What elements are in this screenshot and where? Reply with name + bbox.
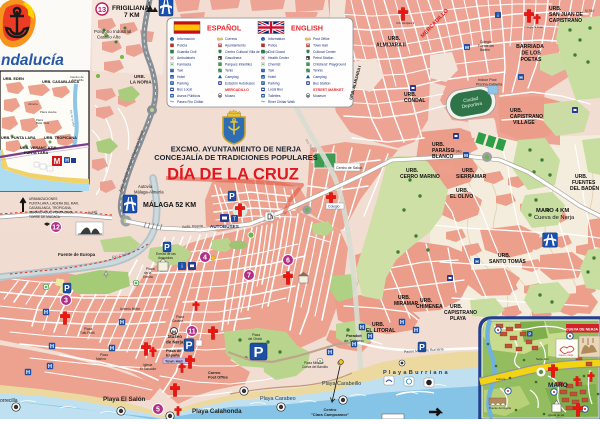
svg-text:SANTO TOMÁS: SANTO TOMÁS: [489, 258, 526, 265]
svg-text:ENGLISH: ENGLISH: [291, 24, 323, 33]
svg-text:Piscina Cubierta: Piscina Cubierta: [476, 83, 502, 87]
svg-text:Ermita: Ermita: [143, 275, 153, 279]
svg-text:Hotel: Hotel: [177, 75, 185, 79]
svg-text:Cultural Center: Cultural Center: [313, 50, 337, 54]
svg-text:Plaza Huelva: Plaza Huelva: [40, 110, 57, 114]
svg-text:Plaza de: Plaza de: [166, 349, 181, 353]
svg-text:Bella Vista: Bella Vista: [36, 121, 50, 125]
svg-text:Aseos Públicos: Aseos Públicos: [177, 94, 200, 98]
svg-text:6: 6: [286, 258, 290, 265]
svg-text:Parques Infantiles: Parques Infantiles: [225, 62, 252, 66]
svg-text:PUNTA LARA: PUNTA LARA: [24, 151, 49, 155]
svg-text:CUEVA DE NERJA: CUEVA DE NERJA: [566, 327, 599, 331]
svg-text:Bus Local: Bus Local: [177, 88, 192, 92]
svg-text:URB.: URB.: [388, 36, 401, 42]
svg-text:del Olvido: del Olvido: [248, 337, 262, 341]
svg-text:Marina: Marina: [96, 357, 106, 361]
svg-text:CAPISTRANO: CAPISTRANO: [549, 18, 582, 24]
svg-text:URB. EDEN: URB. EDEN: [3, 77, 24, 81]
svg-text:Parking: Parking: [177, 81, 189, 85]
svg-text:Local Bus: Local Bus: [268, 88, 283, 92]
svg-text:M: M: [54, 157, 61, 166]
svg-text:Post Office: Post Office: [313, 37, 330, 41]
svg-text:URB. VERANO AZUL,: URB. VERANO AZUL,: [20, 146, 59, 150]
svg-text:PUNTA LARA, LADERA DEL MAR,: PUNTA LARA, LADERA DEL MAR,: [29, 202, 79, 206]
svg-text:Museo: Museo: [168, 334, 182, 339]
svg-text:"Clara Campoamor": "Clara Campoamor": [311, 412, 349, 417]
svg-text:Estación Autobuses: Estación Autobuses: [225, 81, 255, 85]
svg-text:PARAÍSO: PARAÍSO: [432, 146, 455, 154]
svg-text:Centro de Salud: Centro de Salud: [336, 166, 362, 170]
svg-text:N 340: N 340: [585, 9, 594, 13]
svg-text:Farmacia: Farmacia: [177, 62, 191, 66]
svg-text:URBANIZACIONES: URBANIZACIONES: [29, 197, 57, 201]
svg-text:H: H: [171, 75, 173, 79]
svg-text:Paseo Río Chillar: Paseo Río Chillar: [177, 100, 204, 104]
svg-text:H: H: [65, 158, 69, 164]
svg-text:STREET MARKET: STREET MARKET: [313, 88, 344, 92]
svg-text:Playa Carabeo: Playa Carabeo: [260, 396, 296, 402]
svg-text:P: P: [171, 81, 173, 85]
svg-text:MARO: MARO: [548, 382, 568, 389]
svg-text:Polígono Industrial: Polígono Industrial: [94, 29, 131, 34]
svg-text:Castillo Alto: Castillo Alto: [97, 35, 121, 40]
svg-text:Post Office: Post Office: [208, 376, 228, 380]
svg-text:URB. PUNTA LARA: URB. PUNTA LARA: [1, 136, 36, 140]
svg-text:MARO 4 KM: MARO 4 KM: [536, 208, 569, 214]
svg-text:5: 5: [156, 407, 160, 414]
svg-text:Playa El Salón: Playa El Salón: [103, 396, 146, 403]
svg-text:España: España: [166, 354, 180, 358]
svg-text:Correo: Correo: [208, 371, 221, 375]
svg-text:URB.: URB.: [134, 74, 145, 79]
svg-text:Urb. Almijara II: Urb. Almijara II: [396, 21, 415, 25]
svg-text:Tutti-Frutti: Tutti-Frutti: [80, 331, 95, 335]
svg-text:FRIGILIANA: FRIGILIANA: [112, 5, 149, 12]
svg-text:DE LOS: DE LOS: [521, 51, 541, 57]
svg-text:Información: Información: [177, 37, 195, 41]
svg-text:MIRAMAR: MIRAMAR: [394, 301, 419, 307]
svg-text:Camping: Camping: [225, 75, 239, 79]
svg-text:Policía: Policía: [177, 44, 187, 48]
svg-text:CHIMENEA: CHIMENEA: [416, 304, 443, 310]
svg-text:M: M: [172, 329, 176, 334]
svg-text:7: 7: [247, 273, 251, 280]
svg-text:TORRE DE MACACA: TORRE DE MACACA: [29, 215, 61, 219]
svg-text:Fuente de Europa: Fuente de Europa: [58, 252, 96, 257]
svg-text:Tenis: Tenis: [225, 69, 233, 73]
svg-text:Town Hall: Town Hall: [165, 360, 183, 364]
svg-text:Angustias: Angustias: [158, 256, 173, 260]
svg-text:BLANCO: BLANCO: [432, 154, 453, 160]
svg-text:SIERRAMAR: SIERRAMAR: [456, 174, 487, 180]
svg-text:Guardia Civil: Guardia Civil: [177, 50, 197, 54]
svg-text:Cueva - Nerja: Cueva - Nerja: [559, 354, 574, 357]
svg-text:Ambulatorio: Ambulatorio: [177, 56, 195, 60]
svg-text:CONCEJALÍA DE TRADICIONES POPU: CONCEJALÍA DE TRADICIONES POPULARES: [154, 153, 318, 162]
svg-text:Information: Information: [268, 37, 285, 41]
svg-text:i: i: [497, 13, 498, 18]
svg-text:ndalucía: ndalucía: [1, 52, 64, 69]
svg-text:DÍA DE LA CRUZ: DÍA DE LA CRUZ: [167, 165, 299, 184]
svg-text:EL OLIVO: EL OLIVO: [450, 194, 473, 200]
svg-text:Police: Police: [268, 44, 277, 48]
svg-text:Taxi: Taxi: [268, 69, 274, 73]
svg-text:T: T: [233, 217, 236, 223]
svg-text:4: 4: [203, 255, 207, 262]
svg-text:13: 13: [98, 5, 106, 14]
svg-text:VERANO AZUL, PUNTA LARA,: VERANO AZUL, PUNTA LARA,: [29, 211, 74, 215]
svg-text:Ermedillo: Ermedillo: [72, 78, 84, 82]
svg-text:VILLAGE: VILLAGE: [513, 120, 535, 126]
svg-text:BARRIADA: BARRIADA: [516, 44, 544, 50]
svg-text:MÁLAGA 52 KM: MÁLAGA 52 KM: [143, 200, 196, 209]
svg-text:Correos: Correos: [225, 37, 237, 41]
svg-text:Museum: Museum: [313, 94, 326, 98]
svg-text:11: 11: [188, 329, 196, 336]
svg-text:Cueva del Bandito: Cueva del Bandito: [302, 365, 328, 369]
svg-text:Ayuntamiento: Ayuntamiento: [225, 44, 246, 48]
svg-text:Town Hall: Town Hall: [313, 44, 328, 48]
svg-text:LA NORIA: LA NORIA: [130, 80, 152, 85]
svg-text:Iglesia de las: Iglesia de las: [548, 413, 565, 417]
svg-text:El Salvador: El Salvador: [140, 367, 157, 371]
svg-text:12: 12: [52, 225, 60, 232]
svg-text:M: M: [465, 45, 469, 50]
svg-text:P: P: [253, 344, 263, 361]
svg-text:Colegio S.Juan: Colegio S.Juan: [524, 25, 543, 29]
svg-text:Autovía: Autovía: [496, 377, 506, 381]
svg-text:ESPAÑOL: ESPAÑOL: [207, 24, 242, 33]
svg-text:Health Center: Health Center: [268, 56, 290, 60]
svg-text:Camping: Camping: [313, 75, 327, 79]
svg-text:P: P: [262, 81, 264, 85]
svg-text:M: M: [464, 153, 468, 158]
svg-text:Nerja 4km: Nerja 4km: [536, 357, 549, 361]
svg-text:Autovía: Autovía: [138, 184, 153, 189]
svg-text:Gasolinera: Gasolinera: [225, 56, 242, 60]
svg-text:H: H: [262, 75, 264, 79]
svg-text:i: i: [181, 264, 182, 270]
svg-text:ALMIJARA II: ALMIJARA II: [376, 43, 406, 49]
svg-text:Taxi: Taxi: [177, 69, 183, 73]
svg-text:Colegio: Colegio: [328, 205, 340, 209]
svg-text:Playa Carabeillo: Playa Carabeillo: [322, 381, 361, 387]
svg-text:DEL BADÉN: DEL BADÉN: [570, 184, 599, 192]
svg-text:CASABLANCA, TROPICANA,: CASABLANCA, TROPICANA,: [29, 206, 72, 210]
svg-text:AUTOBUSES: AUTOBUSES: [210, 224, 239, 229]
svg-text:7 KM: 7 KM: [124, 12, 140, 19]
svg-text:P: P: [528, 332, 531, 337]
svg-text:de Nerja: de Nerja: [166, 340, 184, 345]
svg-text:CERRO MARINO: CERRO MARINO: [400, 174, 440, 180]
svg-text:Museo: Museo: [225, 94, 235, 98]
svg-text:POETAS: POETAS: [521, 57, 542, 63]
svg-text:Childrens' Playground: Childrens' Playground: [313, 62, 346, 66]
svg-text:PLAYA: PLAYA: [450, 316, 466, 322]
svg-text:Puente del Águila: Puente del Águila: [489, 406, 511, 410]
svg-text:Cueva de Nerja: Cueva de Nerja: [534, 215, 575, 221]
svg-text:River Chillar Walk: River Chillar Walk: [268, 100, 295, 104]
svg-text:Tennis: Tennis: [313, 69, 323, 73]
svg-text:Almería: Almería: [28, 102, 38, 106]
svg-text:Parking: Parking: [268, 81, 280, 85]
svg-text:Bus Station: Bus Station: [313, 81, 330, 85]
svg-text:Petrol Station: Petrol Station: [313, 56, 333, 60]
svg-text:Málaga-Almería: Málaga-Almería: [134, 190, 164, 195]
svg-text:Playa Calahonda: Playa Calahonda: [192, 408, 242, 415]
svg-text:Indoor Pool: Indoor Pool: [478, 78, 497, 82]
svg-text:MERCADILLO: MERCADILLO: [225, 88, 249, 92]
svg-text:Chemist: Chemist: [268, 62, 280, 66]
svg-text:P l a y a B u r r i a n a: P l a y a B u r r i a n a: [383, 370, 448, 376]
svg-text:3: 3: [64, 298, 68, 305]
svg-text:Toilettes: Toilettes: [268, 94, 281, 98]
svg-text:Cavana: Cavana: [172, 319, 183, 323]
svg-text:Badén: Badén: [480, 48, 490, 52]
svg-text:CONDAL: CONDAL: [404, 98, 425, 104]
svg-text:URB. TROPICANA: URB. TROPICANA: [44, 136, 77, 140]
svg-text:Antonio Millón: Antonio Millón: [120, 307, 140, 311]
svg-text:Hotel: Hotel: [268, 75, 276, 79]
svg-text:Civil Guard: Civil Guard: [268, 50, 285, 54]
